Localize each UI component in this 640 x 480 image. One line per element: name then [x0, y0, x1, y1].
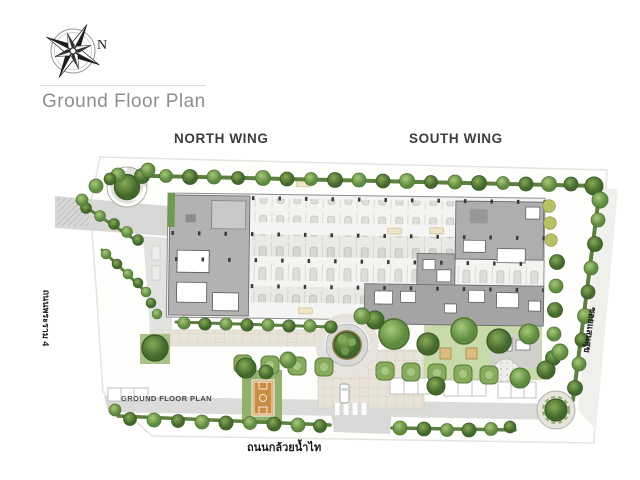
south-wing-label: SOUTH WING — [409, 131, 503, 146]
title-rule — [40, 85, 206, 86]
site-plan-drawing — [0, 0, 640, 480]
spiral-garden-southeast — [537, 391, 575, 429]
compass-north-label: N — [97, 38, 107, 54]
main-building — [166, 179, 545, 326]
south-core — [455, 201, 544, 263]
north-wing-label: NORTH WING — [174, 131, 269, 146]
ground-floor-plan-page: Ground Floor Plan N NORTH WING SOUTH WIN… — [0, 0, 640, 480]
van-icon — [340, 384, 349, 403]
street-label-bottom: ถนนกล้วยน้ำไท — [247, 438, 321, 456]
plan-caption: GROUND FLOOR PLAN — [121, 394, 212, 403]
north-core — [166, 193, 250, 316]
street-label-left: ถนนพระราม 4 — [39, 290, 54, 347]
page-title: Ground Floor Plan — [42, 91, 206, 113]
